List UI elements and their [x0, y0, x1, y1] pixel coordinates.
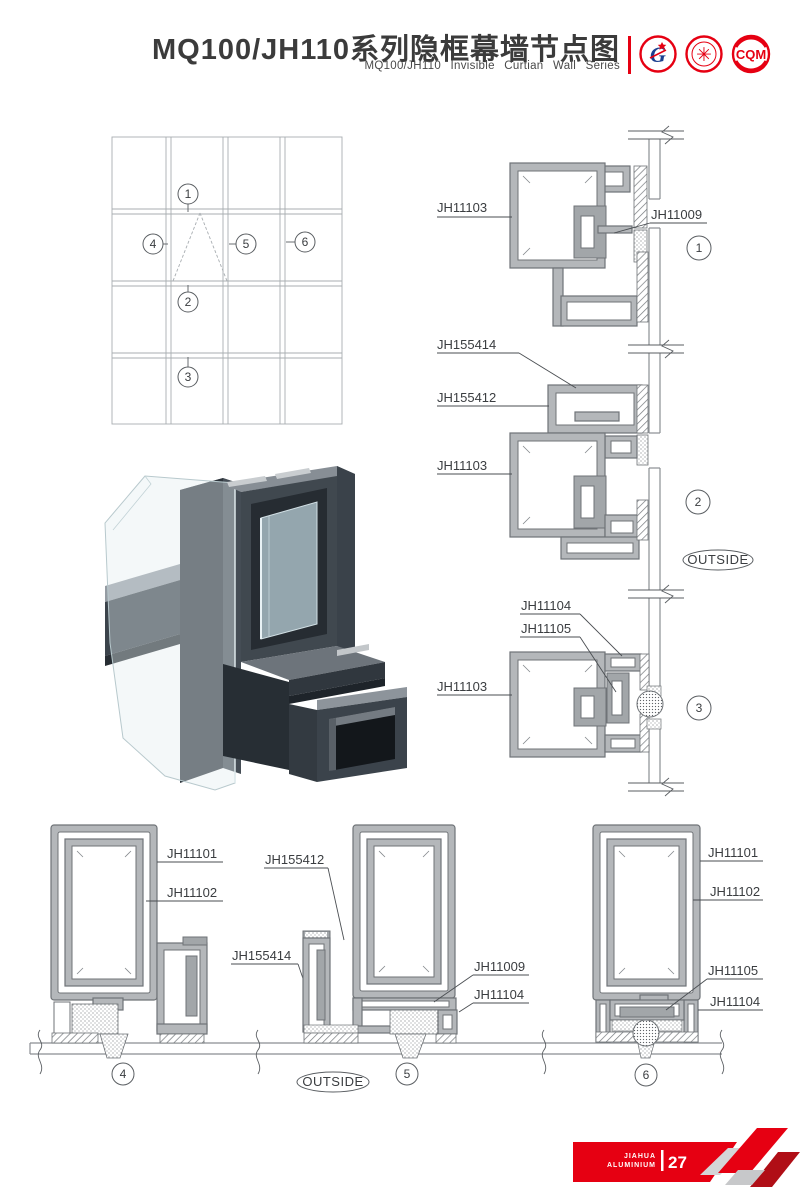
part-label: JH11105: [708, 963, 758, 978]
outside-label-bottom: OUTSIDE: [297, 1072, 369, 1092]
svg-text:5: 5: [243, 237, 250, 251]
part-label: JH11103: [437, 458, 487, 473]
svg-text:OUTSIDE: OUTSIDE: [302, 1074, 363, 1089]
elevation-callout-2: 2: [178, 292, 198, 312]
footer-band: JIAHUA ALUMINIUM 27: [0, 1110, 800, 1200]
part-label: JH11009: [474, 959, 525, 974]
section-detail-3: JH11104 JH11105 JH11103 3: [437, 598, 711, 757]
svg-text:3: 3: [696, 701, 703, 715]
vent-opening-symbol: [173, 213, 227, 281]
svg-text:1: 1: [185, 187, 192, 201]
part-label: JH155414: [437, 337, 496, 352]
svg-text:4: 4: [150, 237, 157, 251]
backer-rod: [633, 1020, 659, 1046]
section-detail-5: JH155412 JH11009 JH11104 5 OUTSIDE: [264, 825, 529, 1092]
detail-callout-6: 6: [635, 1064, 657, 1086]
elevation-callout-3: 3: [178, 367, 198, 387]
detail-callout-2: 2: [686, 490, 710, 514]
svg-text:1: 1: [696, 241, 703, 255]
part-label: JH11103: [437, 679, 487, 694]
elevation-callout-1: 1: [178, 184, 198, 204]
part-label: JH11105: [521, 621, 571, 636]
section-detail-2: JH155414 JH155412 JH11103 2 OUTSIDE: [437, 337, 753, 570]
svg-text:6: 6: [302, 235, 309, 249]
elevation-callout-6: 6: [295, 232, 315, 252]
catalog-page: MQ100/JH110系列隐框幕墙节点图 MQ100/JH110 Invisib…: [0, 0, 800, 1200]
svg-text:2: 2: [695, 495, 702, 509]
part-label: JH11104: [521, 598, 571, 613]
part-label: JH11104: [474, 987, 524, 1002]
footer-page-number: 27: [668, 1153, 687, 1172]
part-label: JH155412: [437, 390, 496, 405]
footer-brand-bottom: ALUMINIUM: [607, 1162, 656, 1169]
detail-callout-3: 3: [687, 696, 711, 720]
svg-text:6: 6: [643, 1068, 650, 1082]
svg-text:OUTSIDE: OUTSIDE: [687, 552, 748, 567]
part-label: JH11103: [437, 200, 487, 215]
part-label: JH11102: [710, 884, 760, 899]
detail-callout-1: 1: [687, 236, 711, 260]
part-label: JH11104: [710, 994, 760, 1009]
part-label: JH11101: [167, 846, 217, 861]
footer-brand-top: JIAHUA: [624, 1153, 656, 1160]
detail-callout-5: 5: [396, 1063, 418, 1085]
outside-label-right: OUTSIDE: [683, 550, 753, 570]
elevation-callout-4: 4: [143, 234, 163, 254]
svg-text:4: 4: [120, 1067, 127, 1081]
svg-text:2: 2: [185, 295, 192, 309]
isometric-render: [105, 466, 407, 790]
elevation-diagram: 1 2 3 4 5 6: [112, 137, 342, 424]
part-label: JH11101: [708, 845, 758, 860]
part-label: JH11009: [651, 207, 702, 222]
detail-callout-4: 4: [112, 1063, 134, 1085]
svg-text:3: 3: [185, 370, 192, 384]
part-label: JH11102: [167, 885, 217, 900]
part-label: JH155414: [232, 948, 291, 963]
svg-text:5: 5: [404, 1067, 411, 1081]
glass-sheet: [105, 476, 235, 790]
part-label: JH155412: [265, 852, 324, 867]
section-detail-1: JH11103 JH11009 1: [437, 163, 711, 326]
section-detail-6: JH11101 JH11102 JH11105 JH11104 6: [593, 825, 763, 1086]
backer-rod: [637, 691, 663, 717]
elevation-callout-5: 5: [236, 234, 256, 254]
